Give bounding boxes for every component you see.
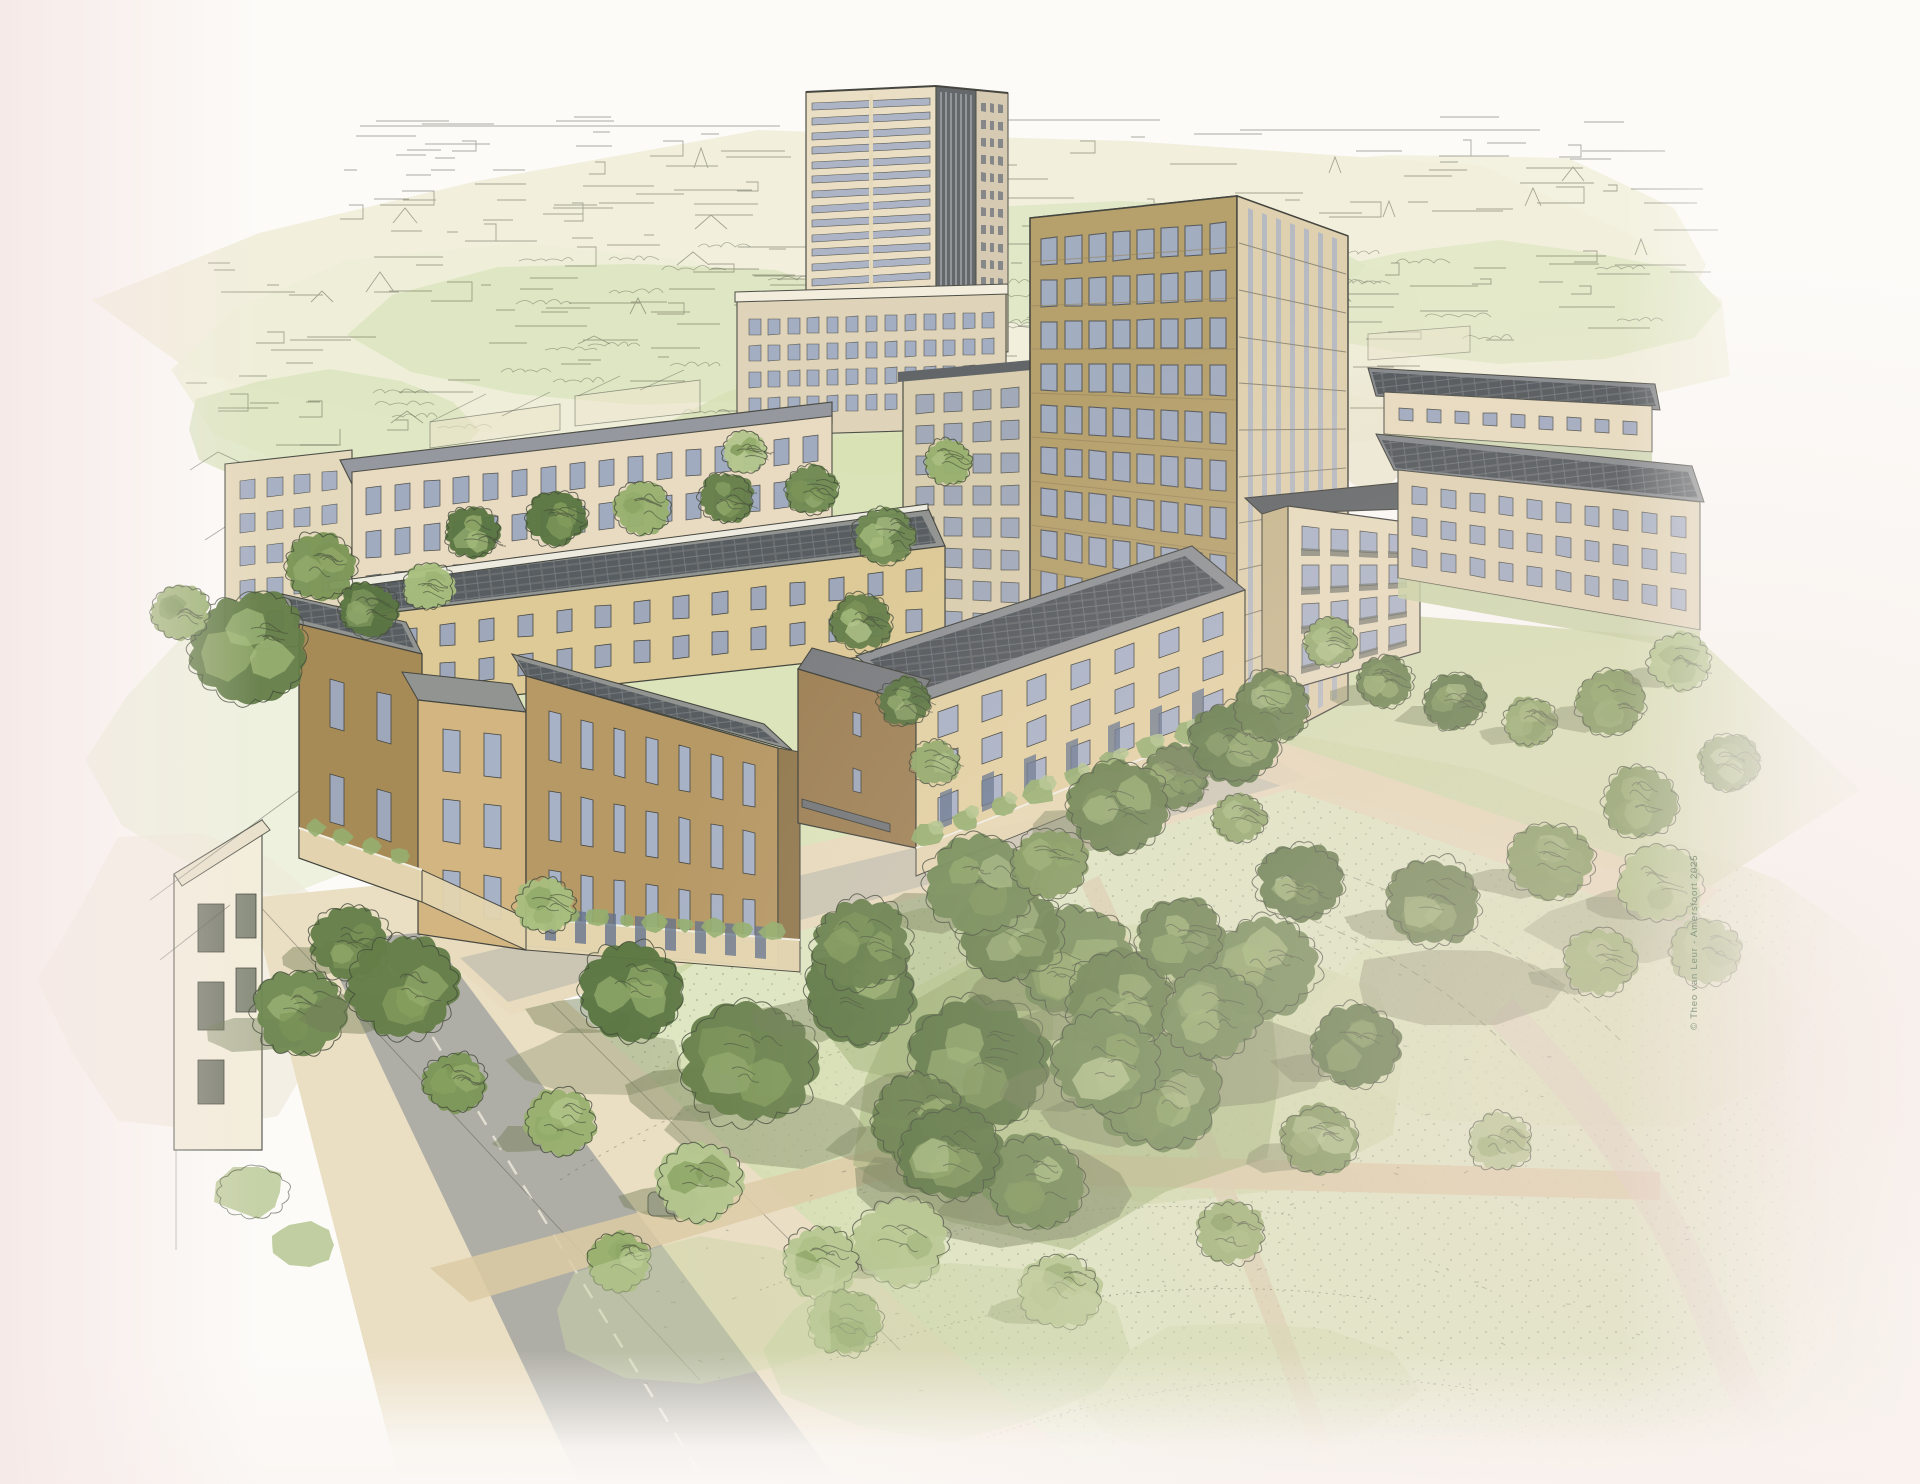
svg-text:© Theo van Leur - Amersfoort 2: © Theo van Leur - Amersfoort 2025: [1689, 855, 1700, 1030]
